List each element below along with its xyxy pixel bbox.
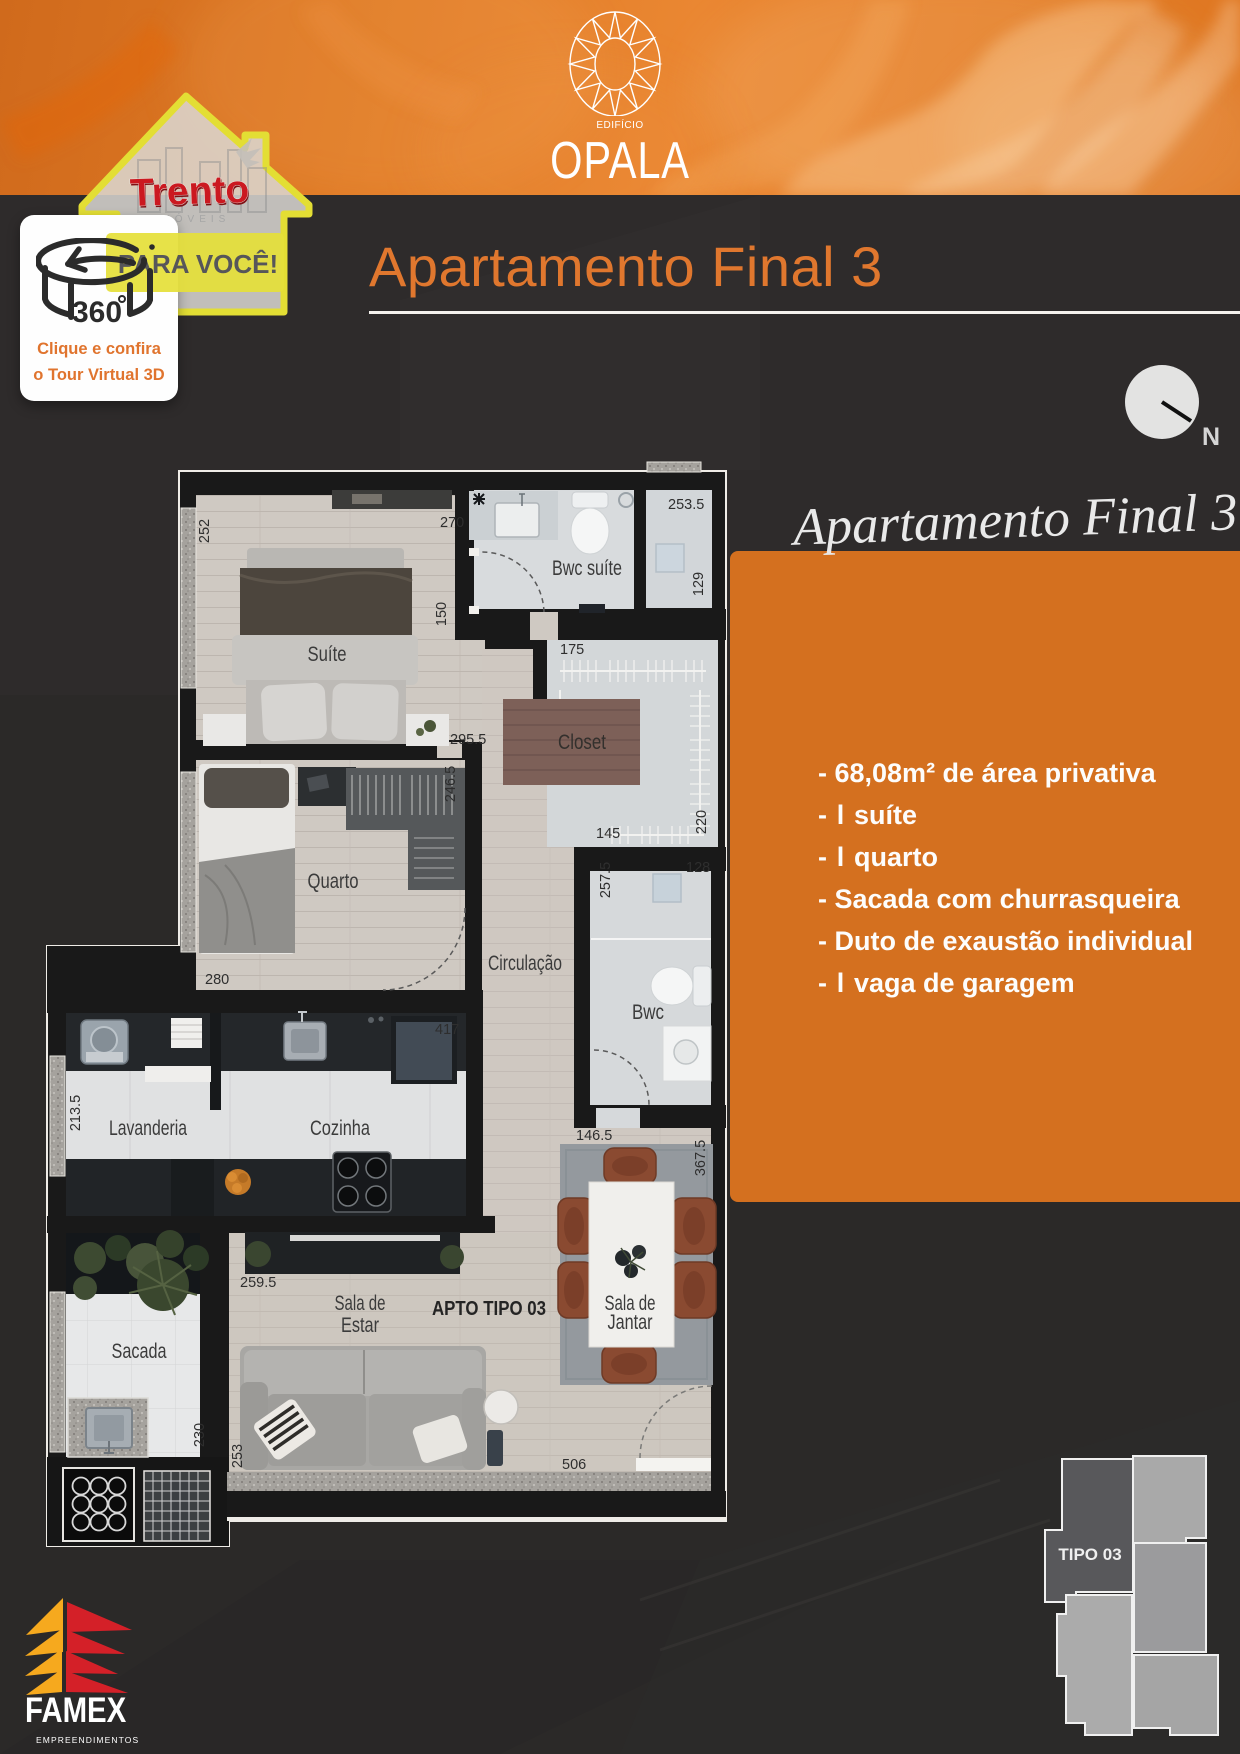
svg-text:Trento: Trento bbox=[129, 168, 250, 215]
svg-text:TIPO 03: TIPO 03 bbox=[1058, 1545, 1121, 1564]
svg-text:Suíte: Suíte bbox=[308, 643, 347, 666]
svg-text:360: 360 bbox=[72, 296, 122, 329]
svg-text:230: 230 bbox=[192, 1423, 208, 1447]
svg-text:367.5: 367.5 bbox=[693, 1140, 709, 1176]
svg-text:246.5: 246.5 bbox=[443, 766, 459, 802]
svg-text:259.5: 259.5 bbox=[240, 1275, 276, 1291]
svg-text:295.5: 295.5 bbox=[450, 732, 486, 748]
svg-text:Lavanderia: Lavanderia bbox=[109, 1117, 187, 1140]
svg-text:Jantar: Jantar bbox=[608, 1311, 653, 1334]
svg-text:270: 270 bbox=[440, 515, 464, 531]
svg-text:N: N bbox=[1202, 423, 1220, 451]
svg-text:146.5: 146.5 bbox=[576, 1128, 612, 1144]
svg-text:280: 280 bbox=[205, 972, 229, 988]
svg-text:Quarto: Quarto bbox=[308, 870, 359, 893]
svg-text:220: 220 bbox=[694, 810, 710, 834]
svg-text:Circulação: Circulação bbox=[488, 952, 562, 975]
svg-text:175: 175 bbox=[560, 642, 584, 658]
svg-text:129: 129 bbox=[691, 572, 707, 596]
svg-text:Bwc suíte: Bwc suíte bbox=[552, 557, 622, 580]
svg-text:253.5: 253.5 bbox=[668, 497, 704, 513]
svg-text:Sala de: Sala de bbox=[335, 1292, 386, 1315]
svg-text:Bwc: Bwc bbox=[632, 1001, 664, 1024]
svg-text:Cozinha: Cozinha bbox=[310, 1117, 370, 1140]
svg-text:150: 150 bbox=[434, 602, 450, 626]
svg-text:417: 417 bbox=[435, 1022, 459, 1038]
svg-text:253: 253 bbox=[230, 1444, 246, 1468]
svg-text:252: 252 bbox=[197, 519, 213, 543]
svg-text:Estar: Estar bbox=[341, 1314, 379, 1337]
svg-text:257.5: 257.5 bbox=[598, 862, 614, 898]
svg-text:506: 506 bbox=[562, 1457, 586, 1473]
svg-text:APTO TIPO 03: APTO TIPO 03 bbox=[432, 1298, 546, 1320]
svg-text:213.5: 213.5 bbox=[68, 1095, 84, 1131]
svg-text:128: 128 bbox=[686, 860, 710, 876]
svg-text:145: 145 bbox=[596, 826, 620, 842]
svg-text:Sacada: Sacada bbox=[112, 1340, 167, 1363]
svg-text:Closet: Closet bbox=[558, 731, 606, 754]
